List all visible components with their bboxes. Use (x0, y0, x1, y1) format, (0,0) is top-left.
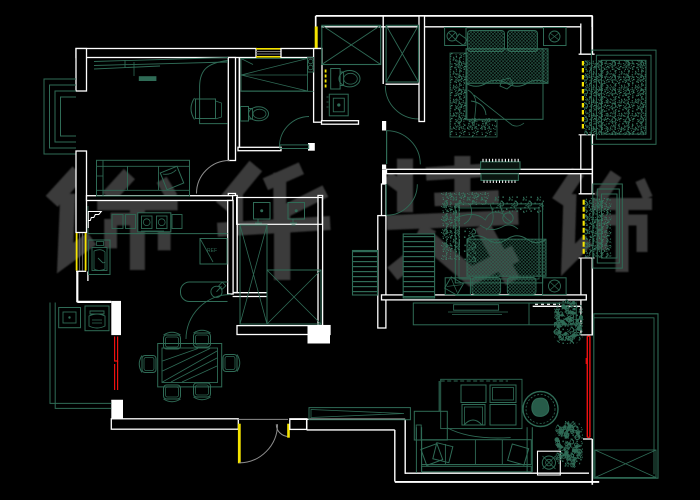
svg-text:REF: REF (207, 248, 217, 254)
